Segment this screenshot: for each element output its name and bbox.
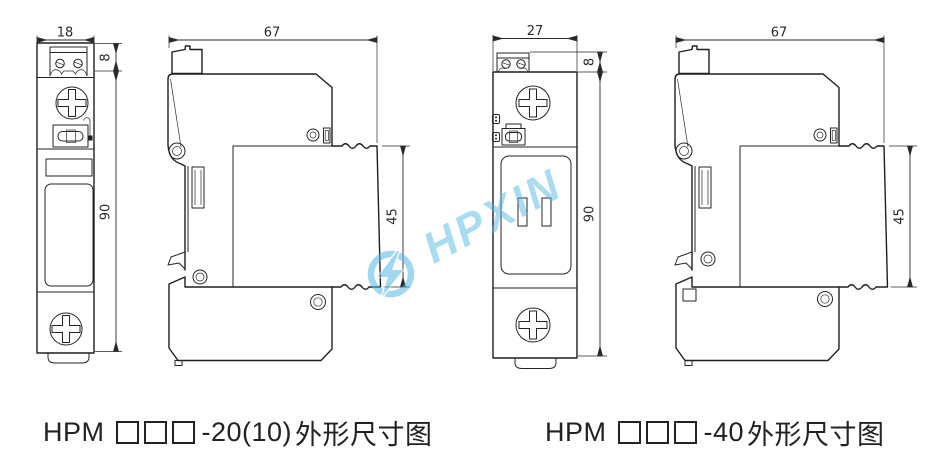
caption-label: 外形尺寸图	[295, 413, 433, 452]
release-latch	[53, 118, 93, 147]
din-rail-slot	[192, 167, 204, 208]
bottom-foot	[175, 361, 182, 366]
placeholder-box	[116, 421, 139, 444]
bottom-tab	[48, 353, 89, 363]
placeholder-box	[646, 421, 669, 444]
plug-module-side	[839, 144, 888, 290]
caption-hpm20: HPM -20(10) 外形尺寸图	[43, 413, 433, 452]
terminal-block	[50, 47, 87, 76]
dim-label-module-height: 45	[893, 208, 908, 225]
model-prefix: HPM	[545, 417, 607, 448]
din-clip-hook	[675, 252, 692, 269]
hpm20-front-view: 18 8 90	[37, 26, 122, 364]
model-placeholder-boxes	[114, 421, 198, 444]
dimensions-side-2: 67 45	[676, 26, 917, 288]
dim-label-width: 27	[527, 24, 544, 39]
label-window	[46, 159, 92, 176]
side-screw	[814, 129, 826, 141]
placeholder-box	[172, 421, 195, 444]
bottom-tab	[515, 358, 556, 369]
caption-hpm40: HPM -40 外形尺寸图	[545, 413, 885, 452]
model-prefix: HPM	[43, 417, 105, 448]
phillips-screw-bottom	[50, 313, 82, 345]
phillips-screw-bottom	[516, 308, 550, 342]
model-placeholder-boxes	[616, 421, 700, 444]
din-rail-slot	[699, 167, 711, 208]
din-clip-hook	[168, 252, 185, 269]
plug-module-front	[45, 184, 93, 286]
hpxin-logo-icon	[371, 251, 411, 297]
mounting-square	[683, 289, 696, 301]
dim-label-terminal-height: 8	[99, 53, 114, 61]
dim-label-depth: 67	[264, 26, 281, 41]
release-latch	[502, 124, 525, 145]
dim-label-module-height: 45	[386, 208, 401, 225]
dim-label-height: 90	[99, 204, 114, 221]
lower-body	[676, 277, 839, 361]
model-suffix: -40	[704, 417, 745, 448]
dim-label-terminal-height: 8	[583, 58, 598, 66]
hpm40-side-view: 67 45	[675, 26, 917, 366]
latch-lever-icon	[84, 118, 91, 136]
placeholder-box	[144, 421, 167, 444]
placeholder-box	[618, 421, 641, 444]
hpm20-side-view: 67 45	[168, 26, 410, 366]
din-clip-top	[679, 46, 709, 74]
placeholder-box	[674, 421, 697, 444]
dim-label-height: 90	[583, 206, 598, 223]
phillips-screw-top	[516, 86, 550, 120]
bottom-foot	[685, 361, 692, 366]
dim-label-width: 18	[57, 26, 74, 41]
terminal-block	[497, 53, 529, 72]
dimension-drawing-sheet: 18 8 90 67 45	[0, 0, 941, 468]
caption-label: 外形尺寸图	[747, 413, 885, 452]
dim-label-depth: 67	[771, 26, 788, 41]
dimensions-side-1: 67 45	[169, 26, 410, 288]
lower-body	[169, 277, 332, 361]
model-suffix: -20(10)	[202, 417, 293, 448]
din-clip-top	[172, 46, 202, 74]
side-screw	[307, 129, 319, 141]
phillips-screw-top	[56, 87, 88, 119]
